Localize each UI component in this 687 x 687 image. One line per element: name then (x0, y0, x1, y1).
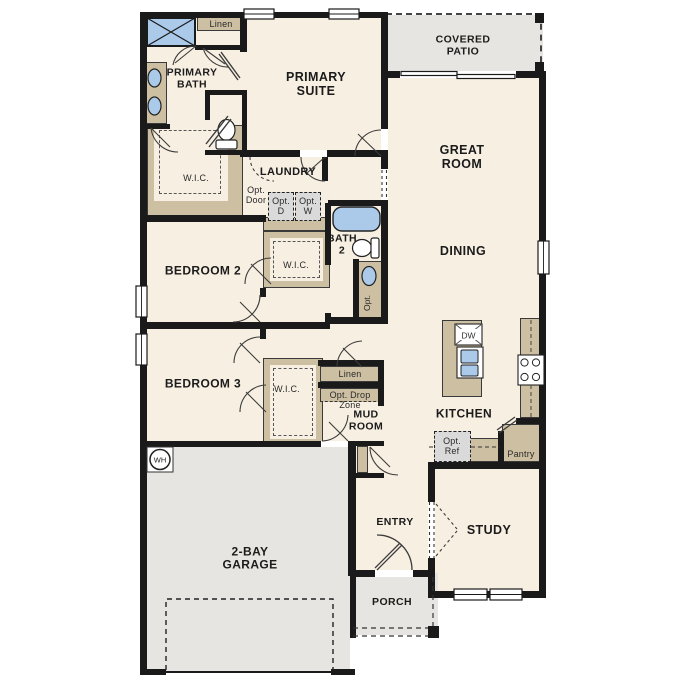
porch-post (428, 626, 439, 638)
room-label-study: STUDY (467, 523, 511, 537)
floor-plan: Opt. DW WH (0, 0, 687, 687)
room-label-garage: 2-BAY GARAGE (222, 546, 277, 573)
label-opt-dryer: Opt. D (272, 196, 290, 216)
shower-icon (147, 18, 195, 46)
room-label-covered-patio: COVERED PATIO (436, 34, 491, 58)
label-opt-drop-zone: Opt. Drop Zone (330, 390, 371, 410)
slider-panel (457, 75, 515, 79)
label-opt-ref: Opt. Ref (443, 436, 461, 456)
label-opt-washer: Opt. W (299, 196, 317, 216)
door-arc (151, 128, 178, 152)
room-label-mud-room: MUD ROOM (349, 409, 383, 433)
door-arc (234, 337, 260, 363)
sink-icon (148, 69, 161, 87)
door-arc (337, 341, 362, 367)
fixtures-overlay: Opt. DW WH (0, 0, 687, 687)
room-label-primary-suite: PRIMARY SUITE (286, 70, 346, 98)
svg-text:WH: WH (154, 456, 167, 465)
room-label-kitchen: KITCHEN (436, 407, 492, 420)
pantry-door-leaf (497, 417, 517, 433)
study-opt-doors (436, 504, 457, 556)
door-arc (233, 295, 260, 322)
window-midlines (142, 14, 544, 595)
door-arc (370, 447, 398, 475)
svg-text:DW: DW (461, 331, 475, 341)
water-heater-icon: WH (147, 447, 173, 472)
room-label-wic-3: W.I.C. (274, 384, 300, 394)
door-arc (355, 130, 381, 156)
stove-icon (518, 355, 544, 385)
room-label-great-room: GREAT ROOM (440, 143, 485, 171)
label-linen-hall: Linen (338, 369, 361, 379)
garage-door-dashed (166, 599, 333, 670)
bath2-opt-label: Opt. (362, 295, 372, 311)
great-room-opening-dashes (382, 170, 387, 200)
room-label-primary-wic: W.I.C. (183, 173, 209, 183)
study-opening-dashes (430, 502, 435, 558)
room-label-dining: DINING (440, 244, 486, 258)
door-arc (240, 385, 266, 412)
front-door-arc (375, 535, 412, 570)
door-arc (245, 258, 271, 284)
sink-icon (148, 97, 161, 115)
room-label-pantry: Pantry (507, 449, 534, 459)
room-label-laundry: LAUNDRY (260, 166, 316, 178)
room-label-porch: PORCH (372, 597, 412, 609)
room-label-wic-2: W.I.C. (283, 260, 309, 270)
slider-panel (401, 72, 457, 76)
room-label-bath-2: BATH 2 (327, 233, 357, 257)
label-linen-top: Linen (209, 19, 232, 29)
room-label-primary-bath: PRIMARY BATH (167, 67, 218, 91)
kitchen-sink-icon (457, 347, 483, 378)
room-label-entry: ENTRY (376, 517, 413, 529)
bathtub-icon (333, 207, 380, 231)
door-arc (322, 415, 348, 441)
label-opt-door: Opt. Door (246, 185, 266, 205)
room-label-bedroom-3: BEDROOM 3 (165, 377, 241, 390)
dishwasher-icon: DW (455, 324, 482, 345)
room-label-bedroom-2: BEDROOM 2 (165, 264, 241, 277)
sink-icon (362, 267, 376, 286)
door-arc (173, 46, 196, 65)
